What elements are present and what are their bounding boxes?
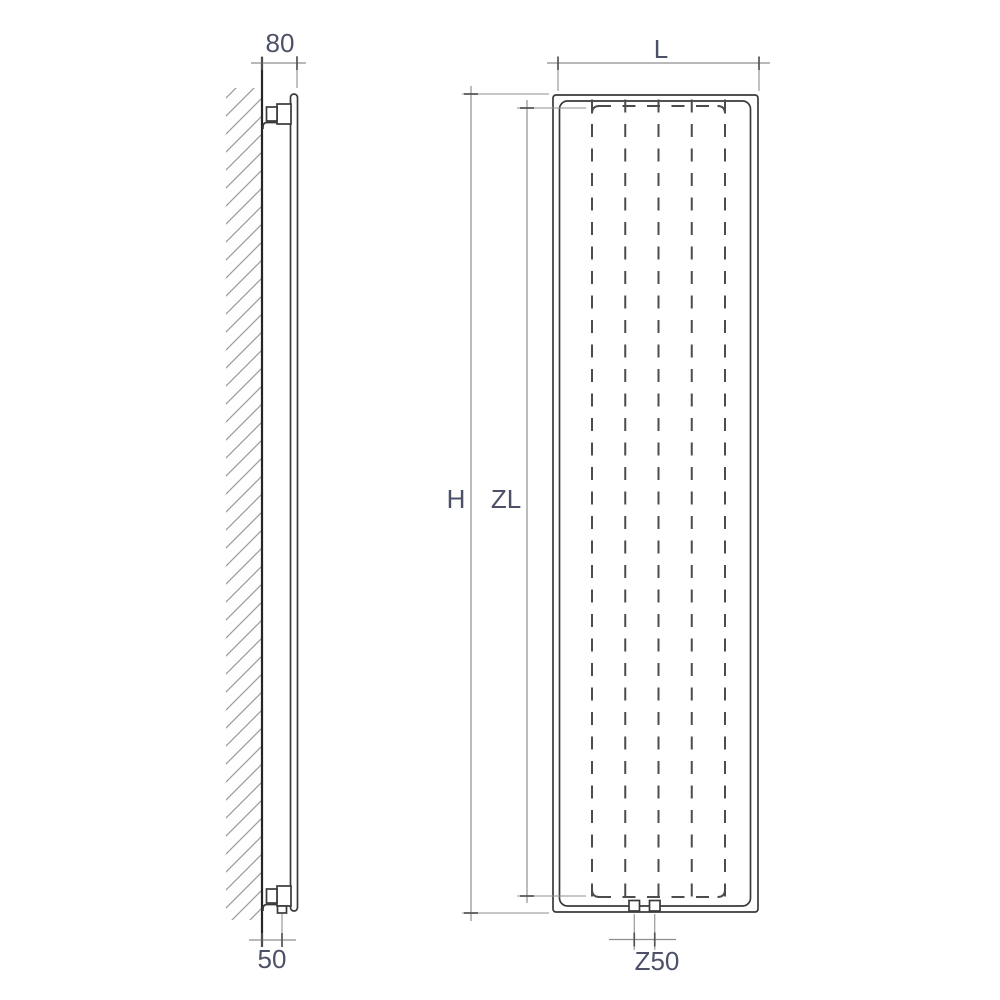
wall-hatch: [226, 88, 262, 920]
top-bracket-hook: [263, 123, 277, 130]
bottom-pipe-stub-side: [278, 906, 287, 913]
left-connection-stub: [629, 901, 640, 912]
front-view: L H ZL Z50: [447, 34, 770, 976]
dimension-connection-spacing: Z50: [609, 914, 679, 976]
side-view: 80 50: [226, 28, 306, 974]
radiator-dimension-drawing: 80 50 L: [0, 0, 1000, 1000]
radiator-outer-panel: [553, 95, 758, 912]
wall-distance-label: 50: [258, 944, 287, 974]
dimension-width: L: [547, 34, 770, 91]
dimension-depth: 80: [251, 28, 306, 88]
connection-extension-lines: [634, 914, 655, 950]
top-bracket: [263, 104, 291, 129]
panel-height-label: ZL: [491, 484, 521, 514]
bottom-bracket-hook: [263, 905, 277, 912]
depth-label: 80: [266, 28, 295, 58]
radiator-side-profile: [291, 94, 298, 911]
right-connection-stub: [650, 901, 661, 912]
top-bracket-wall-plate: [267, 107, 278, 121]
dimension-wall-distance: 50: [249, 914, 296, 974]
top-bracket-body: [277, 104, 291, 124]
width-label: L: [654, 34, 668, 64]
technical-drawing-canvas: 80 50 L: [0, 0, 1000, 1000]
height-label: H: [447, 484, 466, 514]
bottom-bracket: [263, 886, 291, 913]
width-extension-lines: [558, 63, 759, 91]
connection-spacing-label: Z50: [635, 946, 680, 976]
bottom-bracket-body: [277, 886, 291, 906]
bottom-bracket-wall-plate: [267, 889, 278, 903]
